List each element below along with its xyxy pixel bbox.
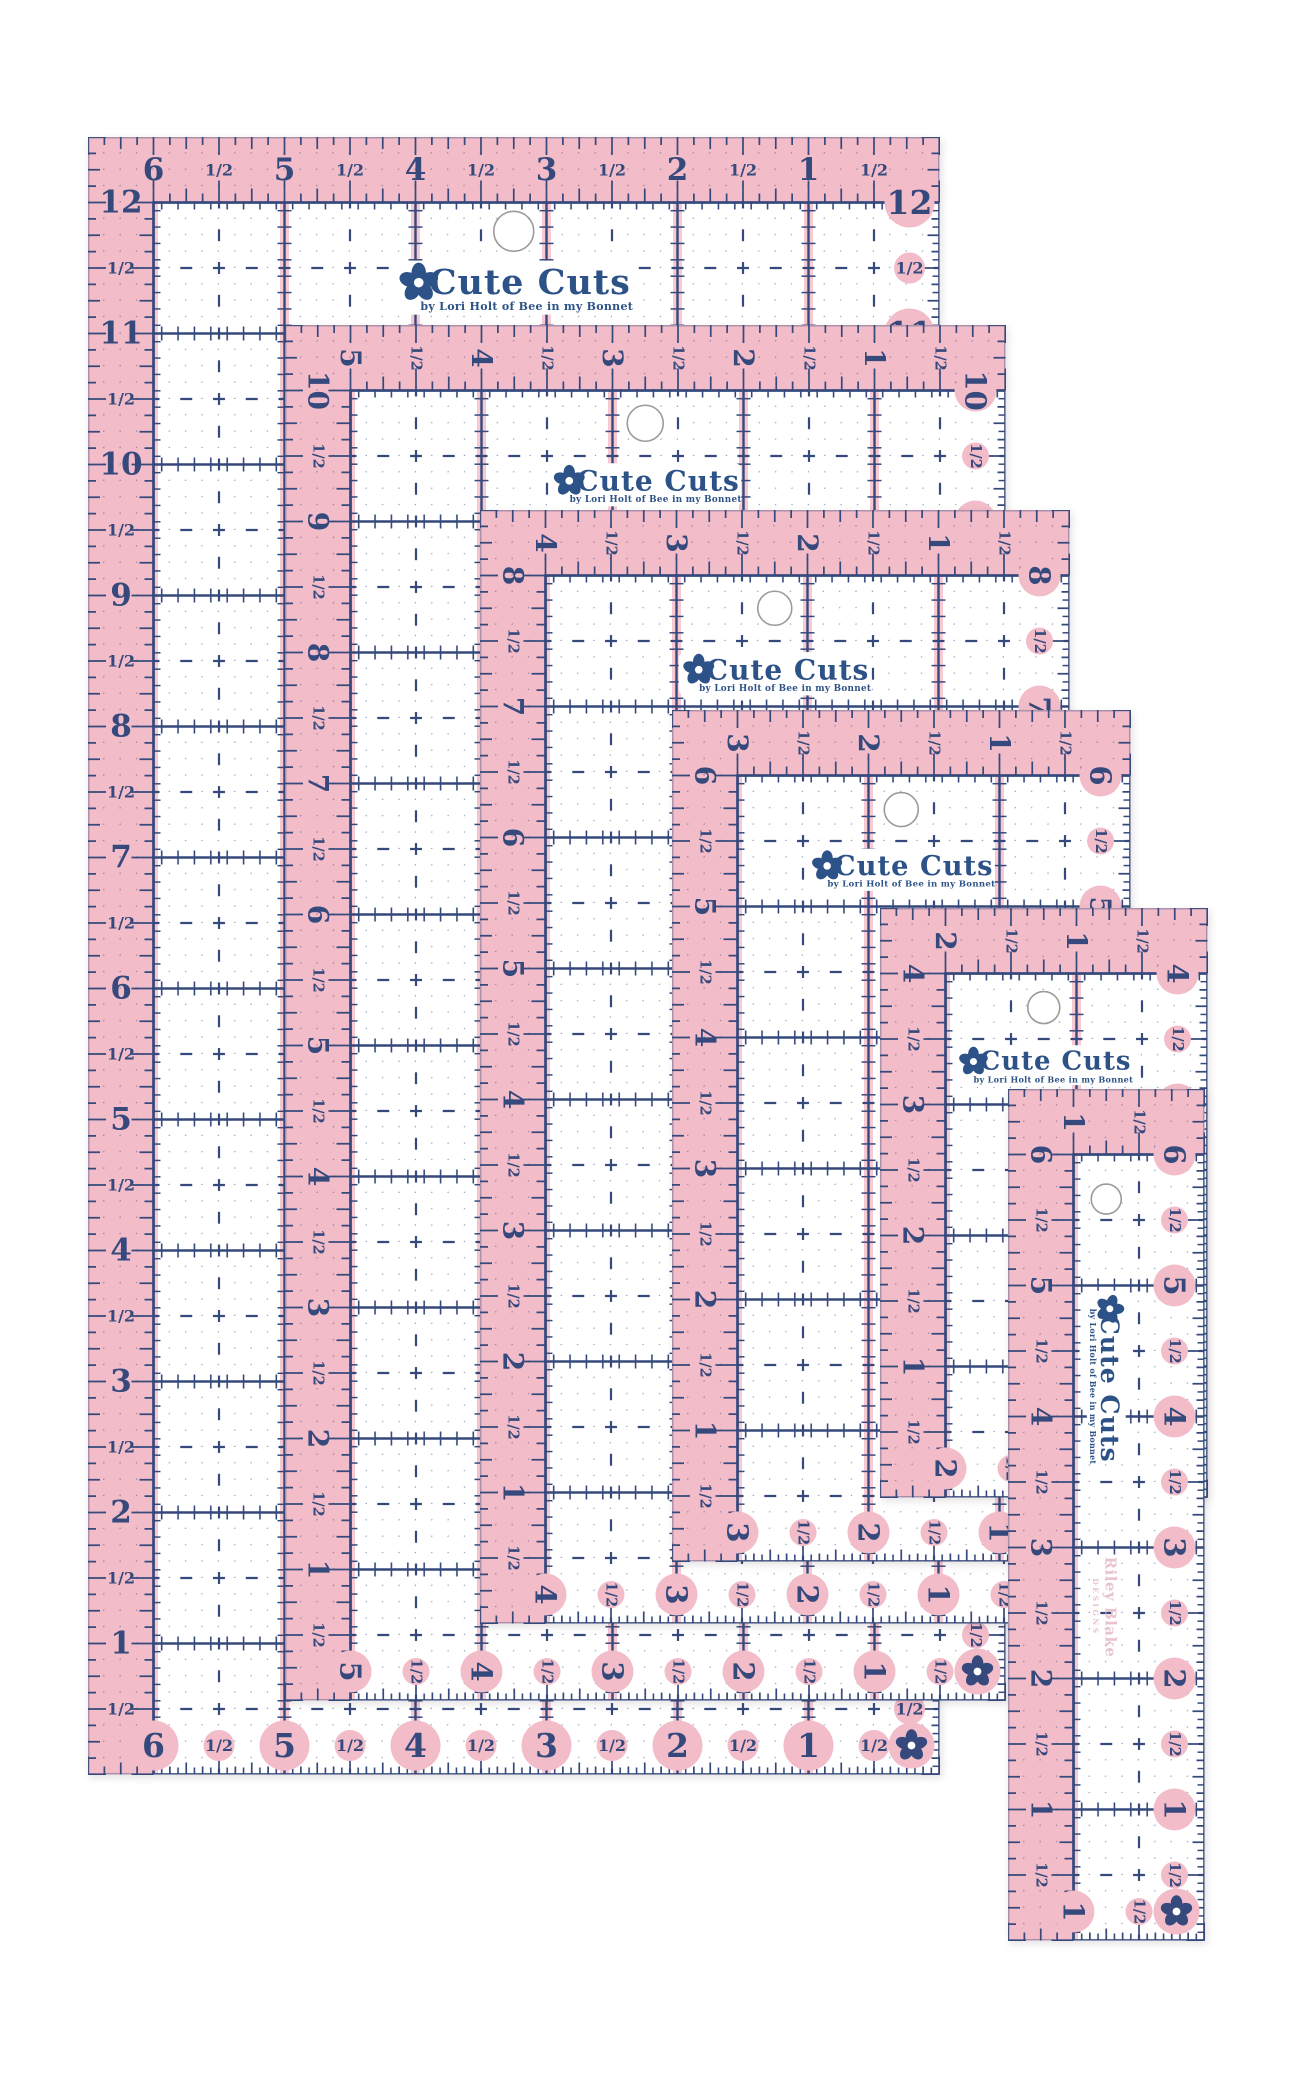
top-inch-label: 1/2 — [860, 161, 888, 180]
bottom-inch-label: 6 — [142, 1726, 165, 1765]
side-inch-label: 1/2 — [310, 1622, 327, 1647]
side-inch-label: 6 — [497, 828, 530, 847]
top-inch-label: 4 — [465, 348, 498, 367]
right-inch-label: 2 — [1158, 1668, 1192, 1688]
side-inch-label: 10 — [302, 371, 335, 410]
top-inch-label: 1/2 — [1131, 1109, 1148, 1134]
right-inch-label: 6 — [1084, 765, 1118, 785]
side-inch-label: 1/2 — [697, 1483, 714, 1508]
bottom-inch-label: 1/2 — [926, 1520, 943, 1545]
bottom-inch-label: 5 — [273, 1726, 296, 1765]
side-inch-label: 1/2 — [505, 1021, 522, 1046]
side-inch-label: 9 — [302, 512, 335, 531]
side-inch-label: 4 — [689, 1028, 722, 1047]
side-inch-label: 1/2 — [310, 705, 327, 730]
cute-cuts-logo: Cute Cutsby Lori Holt of Bee in my Bonne… — [1087, 1291, 1126, 1465]
side-inch-label: 6 — [1025, 1145, 1058, 1164]
side-inch-label: 12 — [99, 185, 142, 221]
side-inch-label: 3 — [1025, 1538, 1058, 1557]
cute-cuts-logo-tagline: by Lori Holt of Bee in my Bonnet — [570, 495, 743, 505]
side-inch-label: 10 — [99, 447, 142, 483]
right-inch-label: 1/2 — [1092, 828, 1109, 853]
top-inch-label: 3 — [660, 533, 693, 552]
right-inch-label: 1/2 — [1031, 628, 1048, 653]
top-inch-label: 1/2 — [734, 530, 751, 555]
top-inch-label: 1/2 — [801, 345, 818, 370]
bottom-inch-label: 1/2 — [539, 1659, 556, 1684]
cute-cuts-logo: Cute Cutsby Lori Holt of Bee in my Bonne… — [808, 849, 996, 891]
side-inch-label: 1/2 — [905, 1026, 922, 1051]
right-inch-label: 4 — [1158, 1406, 1192, 1426]
top-inch-label: 1/2 — [598, 161, 626, 180]
ruler-1-5x6-5: 11/261/251/241/231/221/211/211/261/251/2… — [1008, 1089, 1205, 1941]
side-inch-label: 3 — [302, 1298, 335, 1317]
right-inch-label: 1/2 — [967, 443, 984, 468]
side-inch-label: 1/2 — [310, 1098, 327, 1123]
right-inch-label: 8 — [1023, 565, 1057, 585]
side-inch-label: 1/2 — [697, 1090, 714, 1115]
top-inch-label: 6 — [143, 152, 165, 188]
right-inch-label: 1 — [1158, 1799, 1192, 1819]
side-inch-label: 1/2 — [1033, 1862, 1050, 1887]
side-inch-label: 1/2 — [697, 1221, 714, 1246]
hanging-hole — [1028, 992, 1060, 1024]
top-inch-label: 1/2 — [795, 730, 812, 755]
side-inch-label: 7 — [110, 840, 132, 876]
bottom-inch-label: 1/2 — [865, 1582, 882, 1607]
top-inch-label: 2 — [929, 931, 962, 950]
cute-cuts-logo: Cute Cutsby Lori Holt of Bee in my Bonne… — [549, 463, 742, 506]
side-inch-label: 1/2 — [107, 1438, 135, 1457]
side-inch-label: 4 — [497, 1090, 530, 1109]
side-inch-label: 1/2 — [107, 1176, 135, 1195]
top-inch-label: 2 — [667, 152, 689, 188]
top-inch-label: 1/2 — [603, 530, 620, 555]
top-inch-label: 1 — [983, 733, 1016, 752]
side-inch-label: 4 — [110, 1233, 132, 1269]
top-inch-label: 3 — [721, 733, 754, 752]
bottom-inch-label: 2 — [852, 1522, 886, 1542]
right-inch-label: 1/2 — [1166, 1731, 1183, 1756]
bottom-inch-label: 1/2 — [598, 1736, 626, 1755]
side-inch-label: 5 — [302, 1036, 335, 1055]
cute-cuts-logo-text: Cute Cuts — [980, 1047, 1132, 1077]
side-inch-label: 8 — [497, 566, 530, 585]
hanging-hole — [627, 405, 663, 441]
side-inch-label: 9 — [110, 578, 132, 614]
side-inch-label: 1/2 — [1033, 1338, 1050, 1363]
bottom-inch-label: 1 — [797, 1726, 820, 1765]
right-inch-label: 4 — [1161, 963, 1195, 983]
side-inch-label: 1/2 — [107, 259, 135, 278]
right-inch-label: 1/2 — [967, 1622, 984, 1647]
right-inch-label: 1/2 — [1166, 1600, 1183, 1625]
side-inch-label: 3 — [497, 1221, 530, 1240]
hanging-hole — [884, 793, 918, 827]
side-inch-label: 1/2 — [310, 1491, 327, 1516]
side-inch-label: 1/2 — [1033, 1600, 1050, 1625]
side-inch-label: 2 — [897, 1226, 930, 1245]
right-inch-label: 1/2 — [1166, 1469, 1183, 1494]
side-inch-label: 1 — [302, 1560, 335, 1579]
hanging-hole — [494, 211, 534, 251]
side-inch-label: 1/2 — [505, 890, 522, 915]
side-inch-label: 1/2 — [107, 652, 135, 671]
top-inch-label: 1 — [798, 152, 820, 188]
cute-cuts-logo-tagline: by Lori Holt of Bee in my Bonnet — [1088, 1309, 1097, 1465]
bottom-inch-label: 1/2 — [795, 1520, 812, 1545]
bottom-inch-label: 1/2 — [408, 1659, 425, 1684]
side-inch-label: 1/2 — [107, 390, 135, 409]
top-inch-label: 1/2 — [205, 161, 233, 180]
bottom-inch-label: 1/2 — [801, 1659, 818, 1684]
top-inch-label: 1/2 — [539, 345, 556, 370]
bottom-inch-label: 3 — [596, 1661, 630, 1681]
bottom-inch-label: 3 — [535, 1726, 558, 1765]
top-inch-label: 1 — [1057, 1112, 1090, 1131]
cute-cuts-logo: Cute Cutsby Lori Holt of Bee in my Bonne… — [955, 1045, 1133, 1085]
bottom-inch-label: 4 — [529, 1584, 563, 1604]
side-inch-label: 3 — [897, 1095, 930, 1114]
bottom-inch-label: 2 — [791, 1584, 825, 1604]
cute-cuts-logo: Cute Cutsby Lori Holt of Bee in my Bonne… — [679, 652, 872, 695]
right-inch-label: 1/2 — [895, 1700, 923, 1719]
bottom-inch-label: 2 — [929, 1458, 963, 1478]
side-inch-label: 1/2 — [697, 828, 714, 853]
side-inch-label: 1/2 — [107, 1700, 135, 1719]
top-inch-label: 1/2 — [1057, 730, 1074, 755]
top-inch-label: 1 — [922, 533, 955, 552]
side-inch-label: 3 — [689, 1159, 722, 1178]
top-inch-label: 1/2 — [1003, 928, 1020, 953]
side-inch-label: 1/2 — [107, 783, 135, 802]
right-inch-label: 5 — [1158, 1275, 1192, 1295]
bottom-inch-label: 1 — [858, 1661, 892, 1681]
side-inch-label: 4 — [1025, 1407, 1058, 1426]
side-inch-label: 1/2 — [505, 628, 522, 653]
top-inch-label: 1/2 — [1134, 928, 1151, 953]
side-inch-label: 1/2 — [107, 914, 135, 933]
right-inch-label: 10 — [959, 370, 993, 410]
right-inch-label: 3 — [1158, 1537, 1192, 1557]
cute-cuts-logo-text: Cute Cuts — [1095, 1315, 1125, 1463]
bottom-inch-label: 2 — [727, 1661, 761, 1681]
top-inch-label: 2 — [727, 348, 760, 367]
top-inch-label: 1/2 — [408, 345, 425, 370]
top-inch-label: 1/2 — [865, 530, 882, 555]
top-inch-label: 1/2 — [467, 161, 495, 180]
side-inch-label: 1 — [689, 1421, 722, 1440]
side-inch-label: 7 — [497, 697, 530, 716]
cute-cuts-logo-tagline: by Lori Holt of Bee in my Bonnet — [420, 300, 633, 313]
side-inch-label: 1/2 — [505, 759, 522, 784]
side-inch-label: 1/2 — [107, 1307, 135, 1326]
top-inch-label: 2 — [791, 533, 824, 552]
bottom-inch-label: 3 — [660, 1584, 694, 1604]
bottom-inch-label: 5 — [334, 1661, 368, 1681]
side-inch-label: 1/2 — [107, 521, 135, 540]
side-inch-label: 1 — [1025, 1800, 1058, 1819]
side-inch-label: 11 — [99, 316, 142, 352]
right-inch-label: 1/2 — [1166, 1862, 1183, 1887]
right-inch-label: 12 — [887, 183, 933, 222]
side-inch-label: 1 — [897, 1357, 930, 1376]
cute-cuts-logo-text: Cute Cuts — [706, 653, 869, 686]
bottom-inch-label: 1/2 — [603, 1582, 620, 1607]
side-inch-label: 8 — [110, 709, 132, 745]
cute-cuts-logo-tagline: by Lori Holt of Bee in my Bonnet — [974, 1074, 1134, 1084]
bottom-inch-label: 1/2 — [734, 1582, 751, 1607]
side-inch-label: 1/2 — [905, 1288, 922, 1313]
right-inch-label: 6 — [1158, 1144, 1192, 1164]
side-inch-label: 1 — [497, 1483, 530, 1502]
right-inch-label: 1/2 — [895, 259, 923, 278]
right-inch-label: 1/2 — [1166, 1207, 1183, 1232]
side-inch-label: 6 — [302, 905, 335, 924]
side-inch-label: 1/2 — [505, 1414, 522, 1439]
hanging-hole — [1091, 1184, 1121, 1214]
hanging-hole — [758, 591, 792, 625]
side-inch-label: 5 — [110, 1102, 132, 1138]
bottom-inch-label: 2 — [666, 1726, 689, 1765]
top-inch-label: 3 — [596, 348, 629, 367]
cute-cuts-logo-text: Cute Cuts — [576, 464, 739, 497]
bottom-inch-label: 4 — [404, 1726, 427, 1765]
side-inch-label: 1/2 — [1033, 1469, 1050, 1494]
right-inch-label: 1/2 — [1169, 1026, 1186, 1051]
top-inch-label: 4 — [405, 152, 427, 188]
riley-blake-text: Riley Blake — [1101, 1557, 1119, 1658]
bottom-inch-label: 1/2 — [670, 1659, 687, 1684]
side-inch-label: 1/2 — [310, 836, 327, 861]
top-inch-label: 1/2 — [336, 161, 364, 180]
side-inch-label: 1/2 — [310, 574, 327, 599]
top-inch-label: 1/2 — [729, 161, 757, 180]
top-inch-label: 1 — [858, 348, 891, 367]
top-inch-label: 1/2 — [670, 345, 687, 370]
bottom-inch-label: 4 — [465, 1661, 499, 1681]
side-inch-label: 1/2 — [905, 1419, 922, 1444]
side-inch-label: 1/2 — [505, 1283, 522, 1308]
side-inch-label: 1/2 — [310, 1360, 327, 1385]
top-inch-label: 4 — [529, 533, 562, 552]
right-inch-label: 1/2 — [1166, 1338, 1183, 1363]
side-inch-label: 1/2 — [107, 1569, 135, 1588]
bottom-inch-label: 1/2 — [205, 1736, 233, 1755]
top-inch-label: 1 — [1060, 931, 1093, 950]
cute-cuts-logo: Cute Cutsby Lori Holt of Bee in my Bonne… — [394, 261, 634, 315]
side-inch-label: 1 — [110, 1626, 132, 1662]
side-inch-label: 6 — [110, 971, 132, 1007]
side-inch-label: 2 — [689, 1290, 722, 1309]
bottom-inch-label: 1/2 — [467, 1736, 495, 1755]
side-inch-label: 1/2 — [107, 1045, 135, 1064]
cute-cuts-logo-text: Cute Cuts — [834, 850, 994, 882]
bottom-inch-label: 1/2 — [1131, 1899, 1148, 1924]
riley-blake-designs-text: DESIGNS — [1091, 1578, 1100, 1635]
side-inch-label: 1/2 — [697, 1352, 714, 1377]
bottom-inch-label: 1 — [1057, 1901, 1091, 1921]
side-inch-label: 1/2 — [905, 1157, 922, 1182]
side-inch-label: 5 — [689, 897, 722, 916]
cute-cuts-logo-tagline: by Lori Holt of Bee in my Bonnet — [827, 880, 995, 890]
side-inch-label: 7 — [302, 774, 335, 793]
cute-cuts-logo-text: Cute Cuts — [429, 262, 631, 303]
top-inch-label: 1/2 — [926, 730, 943, 755]
bottom-inch-label: 3 — [721, 1522, 755, 1542]
bottom-inch-label: 1 — [922, 1584, 956, 1604]
side-inch-label: 6 — [689, 766, 722, 785]
side-inch-label: 8 — [302, 643, 335, 662]
bottom-inch-label: 1/2 — [860, 1736, 888, 1755]
side-inch-label: 2 — [497, 1352, 530, 1371]
side-inch-label: 2 — [110, 1495, 132, 1531]
top-inch-label: 5 — [274, 152, 296, 188]
side-inch-label: 2 — [302, 1429, 335, 1448]
top-inch-label: 5 — [334, 348, 367, 367]
side-inch-label: 1/2 — [697, 959, 714, 984]
side-inch-label: 4 — [302, 1167, 335, 1186]
side-inch-label: 1/2 — [505, 1152, 522, 1177]
side-inch-label: 5 — [497, 959, 530, 978]
side-inch-label: 1/2 — [1033, 1731, 1050, 1756]
side-inch-label: 5 — [1025, 1276, 1058, 1295]
bottom-inch-label: 1/2 — [932, 1659, 949, 1684]
side-inch-label: 1/2 — [505, 1545, 522, 1570]
top-inch-label: 3 — [536, 152, 558, 188]
bottom-inch-label: 1/2 — [336, 1736, 364, 1755]
side-inch-label: 2 — [1025, 1669, 1058, 1688]
side-inch-label: 4 — [897, 964, 930, 983]
side-inch-label: 1/2 — [310, 443, 327, 468]
cute-cuts-logo-tagline: by Lori Holt of Bee in my Bonnet — [699, 684, 872, 694]
cute-cuts-ruler-set-photo: 61/251/241/231/221/211/2121/2111/2101/29… — [0, 0, 1300, 2080]
top-inch-label: 2 — [852, 733, 885, 752]
side-inch-label: 1/2 — [310, 1229, 327, 1254]
side-inch-label: 1/2 — [310, 967, 327, 992]
side-inch-label: 1/2 — [1033, 1207, 1050, 1232]
top-inch-label: 1/2 — [932, 345, 949, 370]
side-inch-label: 3 — [110, 1364, 132, 1400]
top-inch-label: 1/2 — [996, 530, 1013, 555]
bottom-inch-label: 1/2 — [729, 1736, 757, 1755]
